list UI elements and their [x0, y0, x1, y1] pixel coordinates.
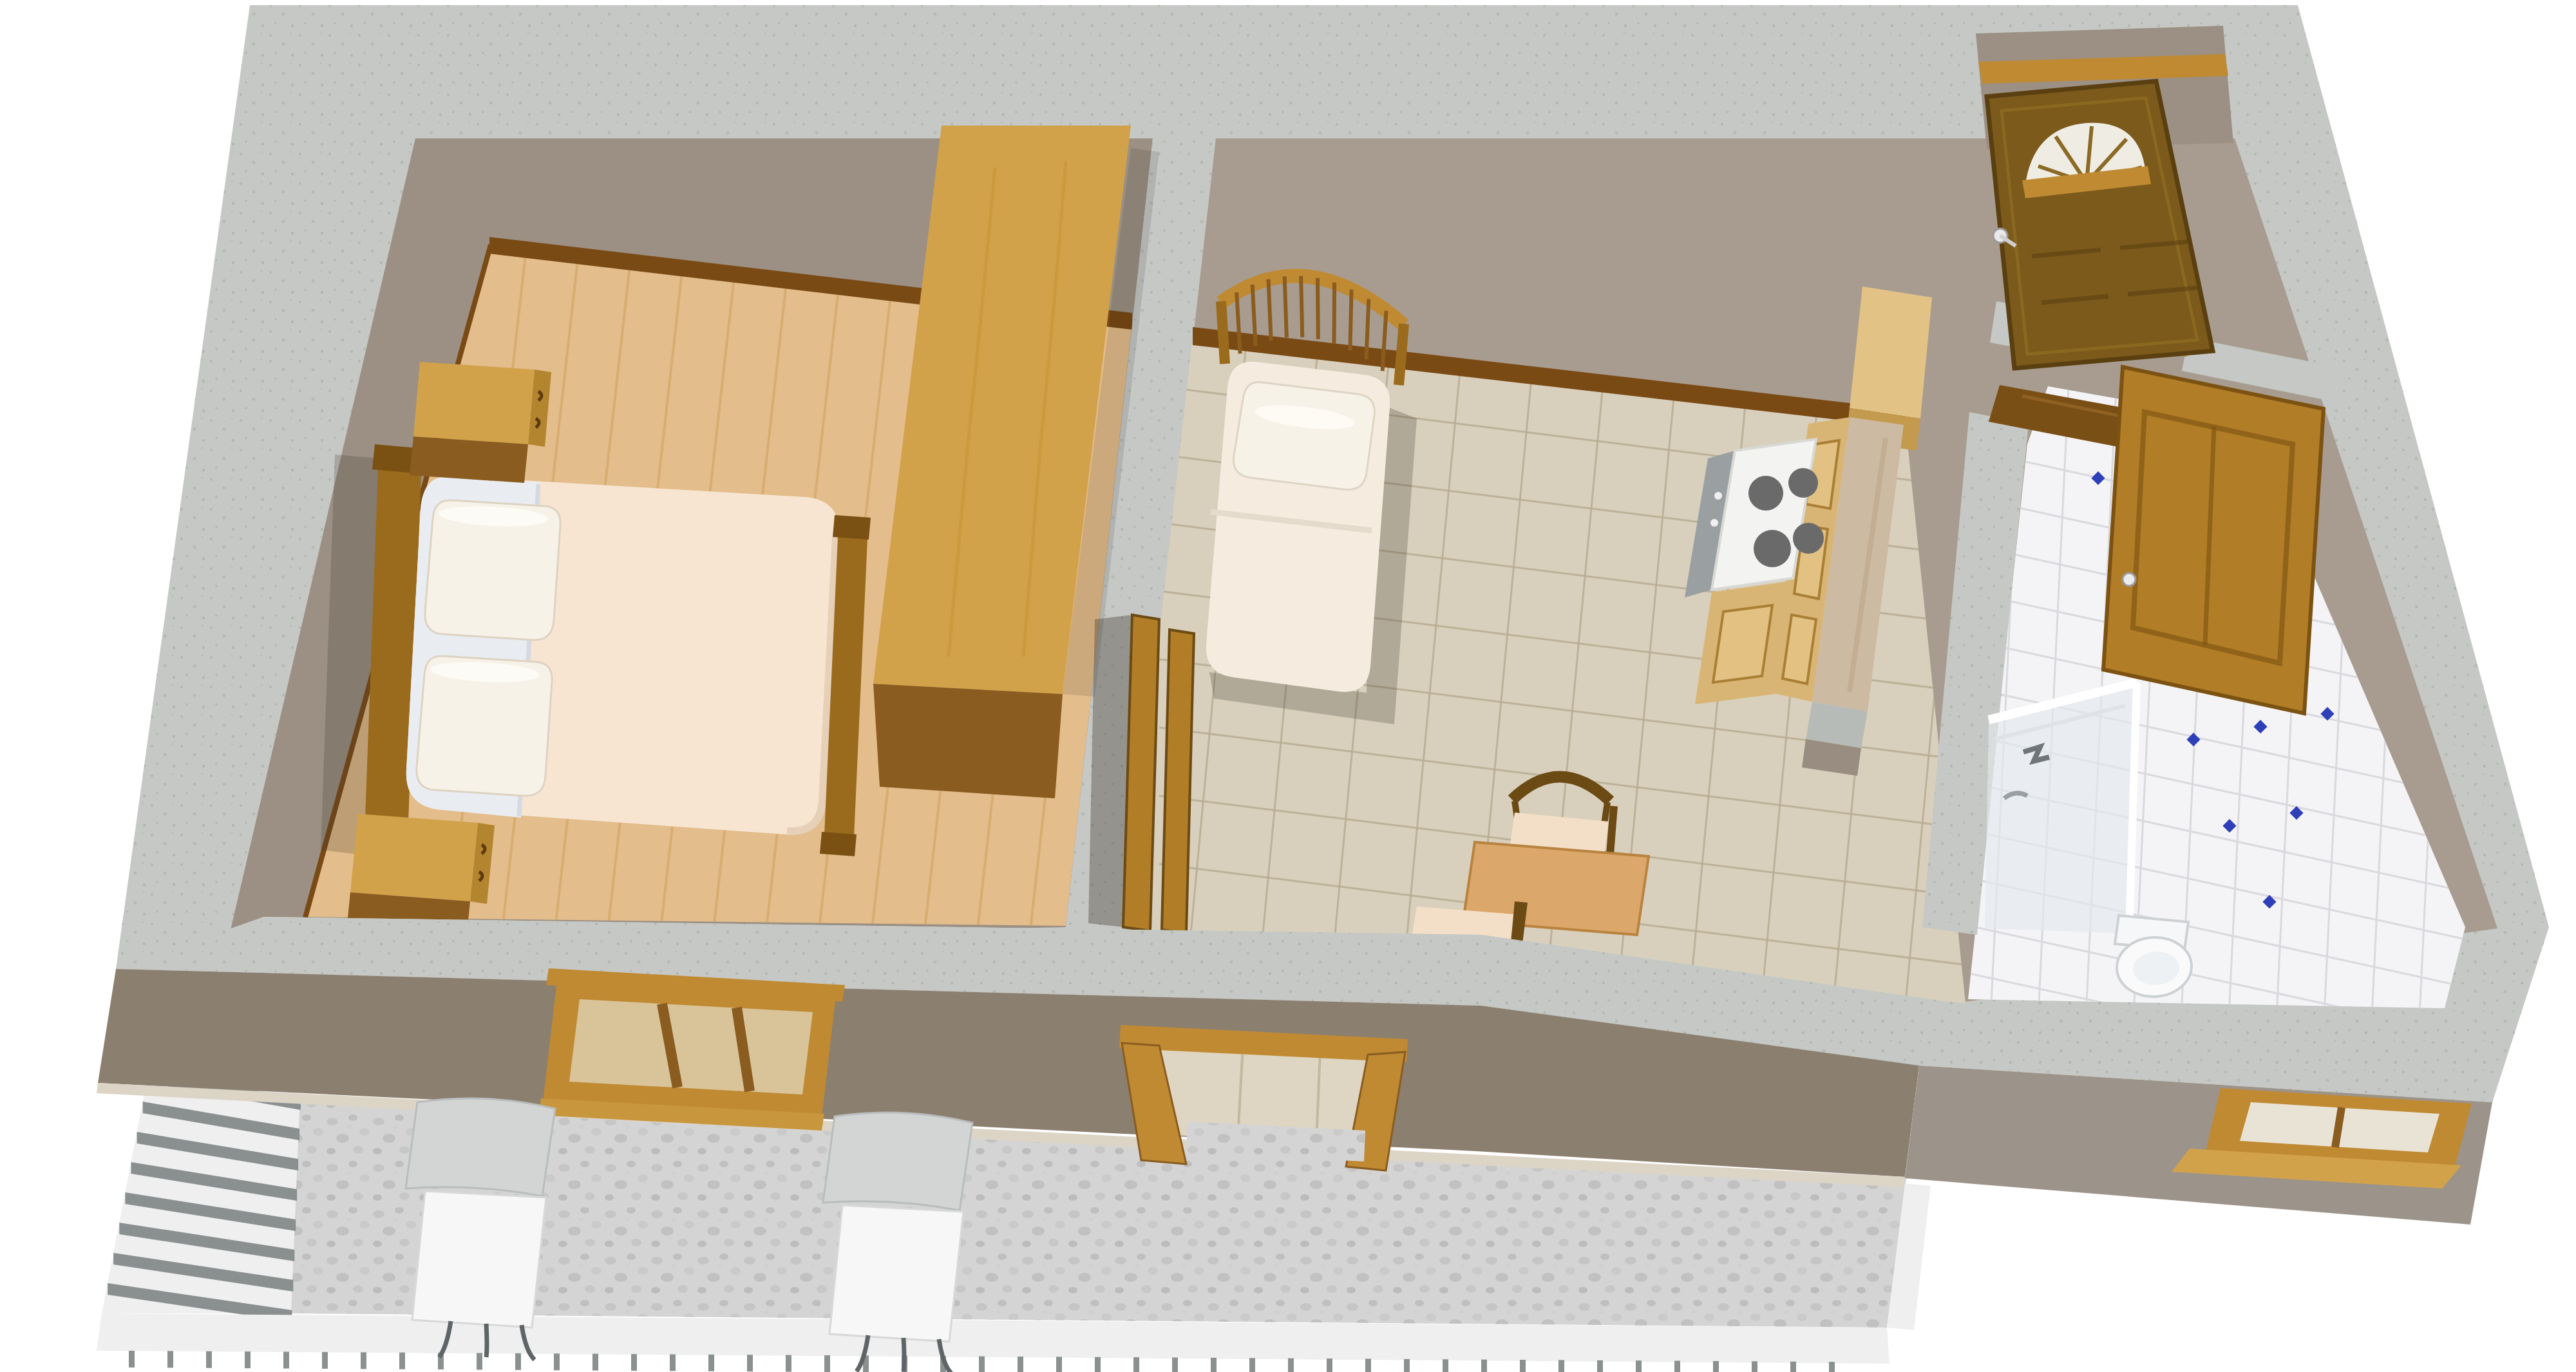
- railing-baluster: [1211, 1358, 1217, 1372]
- lounge-chair-seat: [829, 1205, 963, 1342]
- railing-baluster: [747, 1355, 753, 1371]
- tall-cabinet-top: [1850, 287, 1932, 418]
- nightstand-top-face: [413, 362, 535, 444]
- railing-baluster: [477, 1353, 482, 1370]
- headboard-spindle: [1301, 276, 1302, 337]
- stove-knob: [1714, 492, 1722, 500]
- railing-baluster: [592, 1354, 598, 1371]
- railing-baluster: [1597, 1360, 1603, 1372]
- railing-baluster: [1790, 1362, 1796, 1372]
- railing-baluster: [1249, 1358, 1255, 1372]
- double-bed: [321, 444, 871, 863]
- railing-baluster: [1133, 1357, 1139, 1372]
- railing-baluster: [129, 1351, 135, 1367]
- railing-baluster: [786, 1355, 791, 1372]
- burner: [1793, 523, 1824, 554]
- cabinet-below-panel: [1713, 605, 1772, 682]
- lounge-chair: [406, 1098, 555, 1360]
- headboard-spindle: [1285, 276, 1287, 337]
- headboard-spindle: [1366, 299, 1368, 359]
- footboard-post-top: [833, 515, 871, 540]
- burner: [1788, 468, 1818, 498]
- lounge-chair-leg: [486, 1324, 487, 1357]
- railing-baluster: [1365, 1358, 1371, 1372]
- headboard-post-right: [1399, 324, 1404, 385]
- railing-baluster: [1327, 1358, 1332, 1372]
- lounge-chair-back: [406, 1098, 555, 1196]
- railing-baluster: [1404, 1359, 1410, 1372]
- railing-baluster: [1018, 1357, 1023, 1372]
- railing-baluster: [1558, 1360, 1564, 1372]
- single-bed-pillow: [1234, 382, 1375, 490]
- railing-baluster: [824, 1355, 830, 1372]
- railing-baluster: [1674, 1361, 1680, 1372]
- lounge-chair-leg: [904, 1338, 904, 1371]
- railing-baluster: [1520, 1360, 1526, 1372]
- railing-baluster: [283, 1352, 289, 1369]
- headboard-post-left: [1221, 301, 1225, 364]
- railing-baluster: [206, 1351, 212, 1368]
- railing-baluster: [515, 1353, 521, 1370]
- railing-baluster: [1481, 1360, 1487, 1372]
- footboard-post-bottom: [820, 832, 857, 856]
- railing-baluster: [670, 1354, 676, 1371]
- railing-baluster: [245, 1351, 251, 1368]
- nightstand-front-face: [410, 437, 528, 483]
- railing-baluster: [399, 1353, 405, 1369]
- lounge-chair: [823, 1113, 972, 1372]
- railing-baluster: [1095, 1357, 1101, 1372]
- railing-baluster: [1636, 1360, 1642, 1372]
- railing-baluster: [322, 1352, 328, 1369]
- railing-baluster: [1443, 1359, 1448, 1372]
- burner: [1754, 530, 1791, 567]
- railing-baluster: [631, 1354, 637, 1371]
- railing-baluster: [554, 1353, 560, 1370]
- railing-baluster: [979, 1357, 985, 1372]
- bathroom-door-handle: [2123, 573, 2136, 586]
- lounge-chair-seat: [412, 1191, 546, 1328]
- railing-baluster: [708, 1355, 714, 1371]
- headboard-spindle: [1268, 279, 1271, 341]
- railing-baluster: [1713, 1361, 1719, 1372]
- railing-baluster: [1288, 1358, 1294, 1372]
- bedroom-window-panes: [569, 999, 813, 1095]
- headboard-spindle: [1334, 283, 1335, 344]
- headboard-spindle: [1350, 290, 1351, 350]
- railing-baluster: [361, 1352, 366, 1369]
- nightstand-top-face: [350, 814, 478, 901]
- railing-baluster: [1056, 1357, 1062, 1372]
- railing-baluster: [167, 1351, 173, 1367]
- burner: [1748, 476, 1783, 511]
- bedroom-window: [538, 968, 845, 1131]
- floorplan-3d-render: [0, 0, 2576, 1372]
- wardrobe-front: [873, 684, 1063, 798]
- railing-baluster: [1752, 1361, 1757, 1372]
- railing-baluster: [1829, 1362, 1835, 1372]
- railing-baluster: [1172, 1358, 1178, 1372]
- floorplan-screenshot: [0, 0, 2576, 1372]
- terrace-door-leaves: [1088, 615, 1194, 934]
- terrace-doorway: [1119, 1025, 1408, 1170]
- stove-knob: [1710, 519, 1718, 527]
- headboard-spindle: [1318, 278, 1318, 339]
- lounge-chair-back: [823, 1113, 972, 1210]
